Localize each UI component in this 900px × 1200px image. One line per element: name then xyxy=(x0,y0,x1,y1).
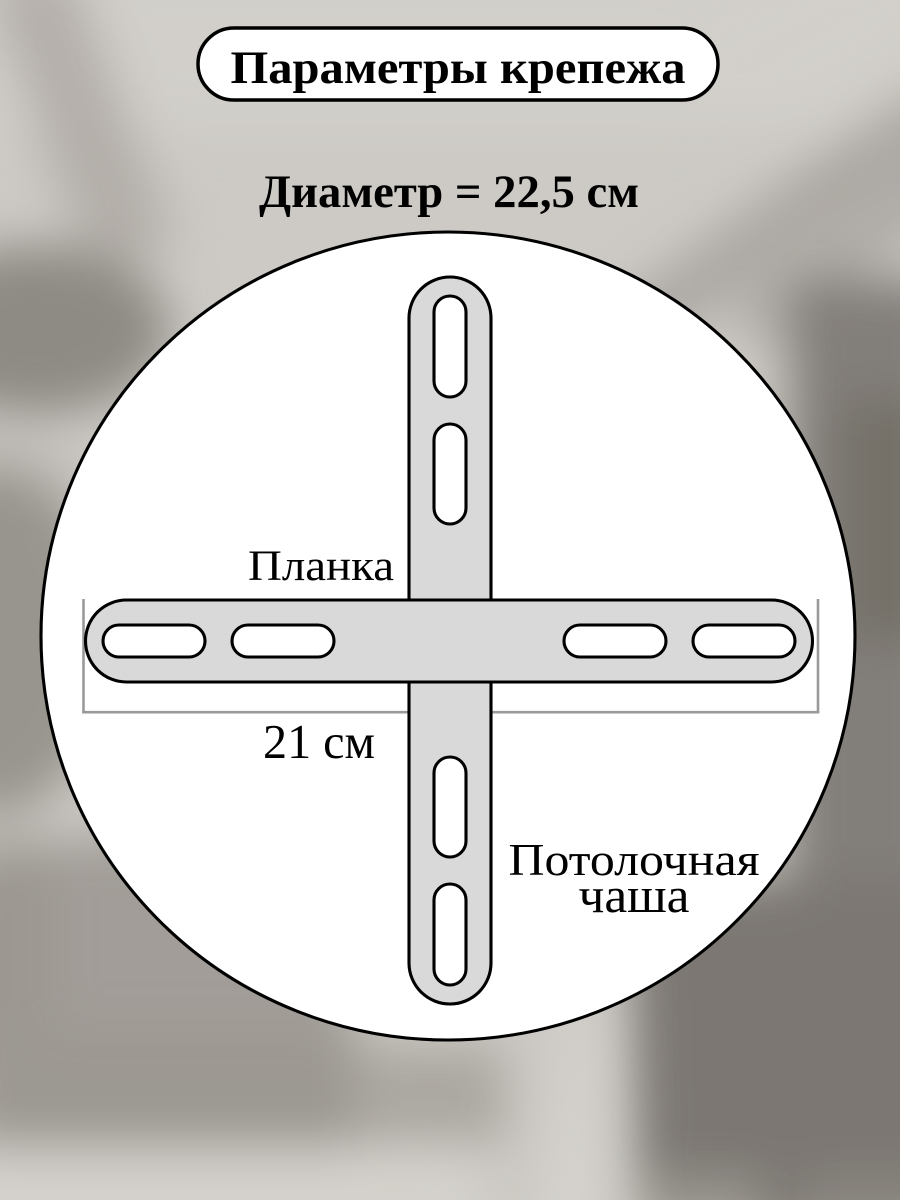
svg-text:21 см: 21 см xyxy=(263,714,375,769)
svg-text:Диаметр = 22,5 см: Диаметр = 22,5 см xyxy=(259,166,639,218)
svg-text:Параметры крепежа: Параметры крепежа xyxy=(231,42,686,94)
svg-text:чаша: чаша xyxy=(579,867,690,923)
svg-text:Планка: Планка xyxy=(248,543,394,590)
